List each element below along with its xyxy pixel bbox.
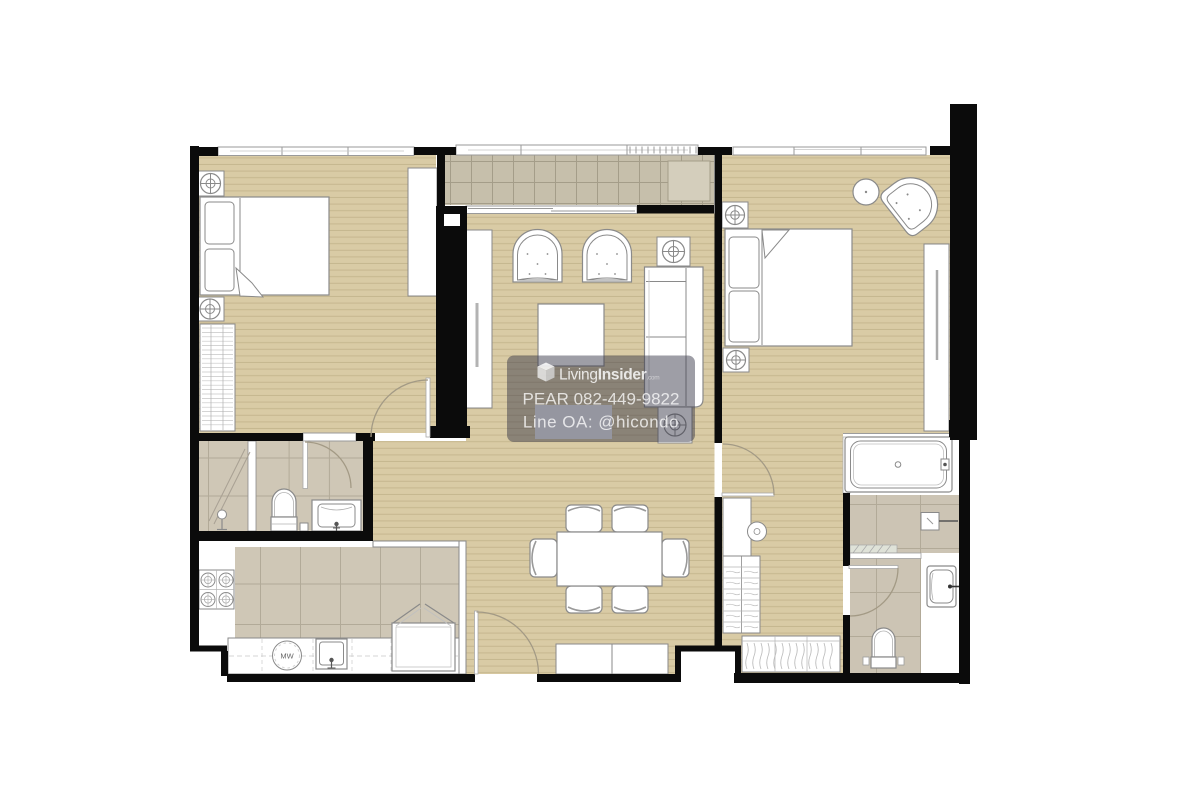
svg-text:PEAR 082-449-9822: PEAR 082-449-9822 xyxy=(523,390,680,409)
svg-text:Line OA: @hicondo: Line OA: @hicondo xyxy=(523,413,679,432)
svg-text:LivingInsider.com: LivingInsider.com xyxy=(559,367,659,384)
svg-text:MW: MW xyxy=(280,652,294,661)
